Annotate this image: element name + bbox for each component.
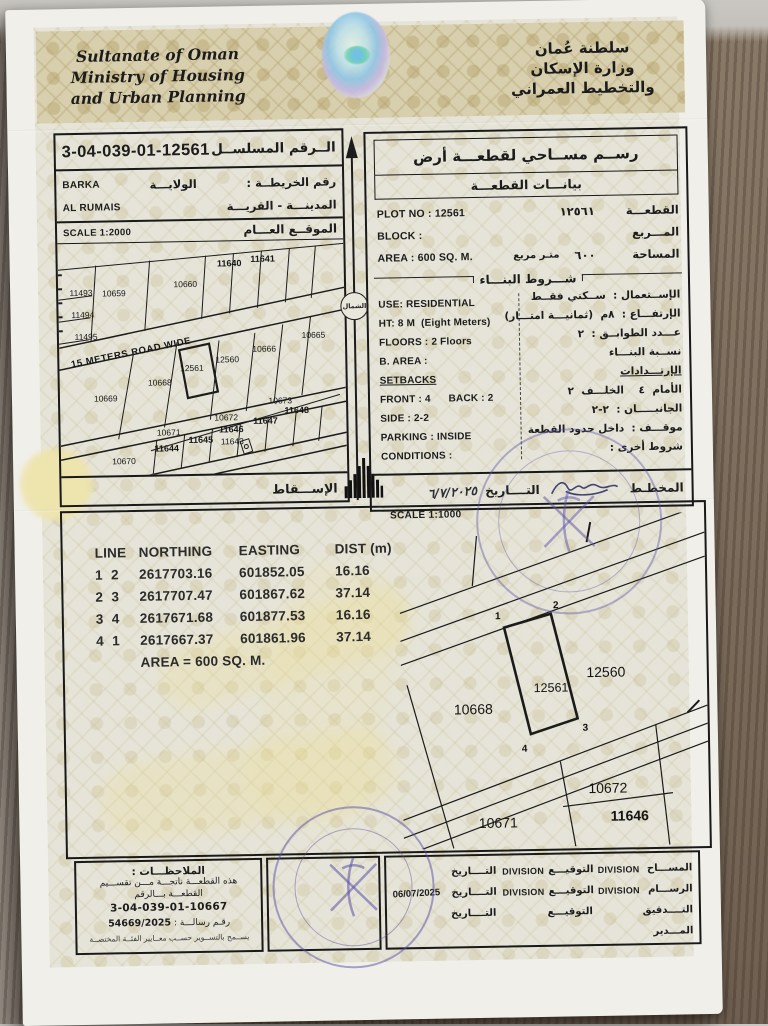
coordinates-table: LINENORTHINGEASTINGDIST (m) 122617703.16… (94, 537, 402, 670)
detail-section: SCALE 1:1000 LINENORTHINGEASTINGDIST (m)… (60, 500, 712, 859)
floors-en: FLOORS : 2 Floors (379, 336, 493, 357)
plot-no-ar-value: ١٢٥٦١ (560, 204, 595, 219)
overview-plot-10660: 10660 (173, 279, 197, 289)
plot-no-en: PLOT NO : 12561 (377, 207, 465, 221)
overview-plot-11495: 11495 (74, 331, 97, 341)
barea-en: B. AREA : (379, 355, 493, 376)
overview-plot-12561: 12561 (180, 363, 204, 373)
building-conditions: USE: RESIDENTIAL HT: 8 M (Eight Meters) … (368, 286, 691, 468)
overview-plot-11640: 11640 (217, 258, 242, 268)
projection-label: الإســـقاط (272, 480, 338, 496)
block-label-ar: المـــربع (632, 224, 679, 239)
corner-1: 1 (495, 611, 501, 622)
survey-date-label: التــــاريخ (485, 483, 540, 498)
overview-plot-11644: 11644 (154, 444, 179, 454)
wilaya-label: الولايـــة (149, 176, 196, 191)
area-ar-unit: متـر مربع (513, 250, 560, 262)
overview-map-title: الموقــع العـــام (243, 221, 337, 237)
parking-en: PARKING : INSIDE (381, 431, 495, 452)
computed-area: AREA = 600 SQ. M. (140, 650, 402, 670)
survey-title: رســم مســاحي لقطعـــة أرض (374, 134, 679, 175)
corner-2: 2 (553, 600, 559, 611)
setbacks-en: SETBACKS (380, 374, 494, 395)
corner-3: 3 (583, 723, 589, 734)
overview-plot-11494: 11494 (71, 309, 94, 319)
map-number-label: رقم الخريطــة : (246, 174, 336, 190)
overview-plot-10669: 10669 (94, 394, 118, 404)
stamp-box (266, 856, 382, 952)
town-label: المدينـــة - القريـــة (227, 197, 337, 213)
planner-signature (547, 477, 621, 502)
overview-plot-10665: 10665 (302, 329, 326, 339)
planner-label: المخطـط (630, 480, 684, 495)
footer-date: 06/07/2025 (392, 887, 450, 901)
document-paper: Sultanate of Oman Ministry of Housing an… (5, 0, 723, 1026)
survey-date-handwritten: ٦/٧/٢٠٢٥ (427, 482, 477, 500)
overview-plot-labels: 1149311494114951065910660116401164110665… (57, 239, 347, 476)
detail-map: 106681256112560106721164610671 1234 (398, 512, 710, 849)
overview-plot-11643: 11643 (221, 436, 244, 446)
overview-plot-12560: 12560 (215, 354, 239, 364)
table-row: 412617667.37601861.9637.14 (96, 625, 402, 652)
conditions-ar: شروط أخرى : (507, 440, 683, 462)
side-en: SIDE : 2-2 (380, 412, 494, 433)
notes-small-print: يســمح بالتســوير حســب معــايير الفئــة… (77, 932, 261, 944)
area-en: AREA : 600 SQ. M. (377, 251, 472, 265)
front-back-en: FRONT : 4 BACK : 2 (380, 393, 494, 414)
overview-plot-10668: 10668 (148, 378, 172, 388)
parent-plot-serial: 3-04-039-01-10667 (77, 899, 261, 916)
ministry-title-english: Sultanate of Oman Ministry of Housing an… (36, 43, 246, 110)
overview-map: 1149311494114951065910660116401164110665… (57, 238, 347, 476)
survey-data-box: رســم مســاحي لقطعـــة أرض بيانـــات الق… (363, 126, 694, 512)
overview-plot-10666: 10666 (252, 343, 276, 353)
area-ar-value: ٦٠٠ (574, 248, 595, 262)
letter-number-value: 54669/2025 (108, 917, 171, 929)
signature-box: المســـاحDIVISIONالتوقيـــعDIVISIONالتــ… (384, 850, 702, 950)
ministry-title-arabic: سلطنة عُمان وزارة الإسكان والتخطيط العمر… (510, 36, 685, 99)
wilaya-value: BARKA (62, 180, 100, 192)
overview-plot-10670: 10670 (112, 456, 136, 466)
notes-box: الملاحظـــات : هذه القطعـــة ناتجـــة مـ… (74, 858, 264, 955)
overview-plot-11645: 11645 (188, 435, 213, 445)
overview-plot-10673: 10673 (268, 395, 292, 405)
letter-number-line: رقـم رسالـــة : 54669/2025 (77, 916, 261, 930)
letter-number-label: رقـم رسالـــة : (174, 917, 230, 928)
overview-plot-11647: 11647 (253, 416, 278, 426)
town-value: AL RUMAIS (63, 202, 121, 214)
serial-label: الــرقم المسلســل (211, 139, 336, 157)
overview-plot-11646: 11646 (219, 424, 244, 434)
signature-row-director: المـــدير (393, 920, 693, 946)
area-label-ar: المساحة (632, 246, 680, 261)
use-en: USE: RESIDENTIAL (378, 298, 492, 319)
overview-plot-11648: 11648 (284, 405, 309, 415)
corner-4: 4 (522, 744, 528, 755)
height-en: HT: 8 M (Eight Meters) (379, 317, 493, 338)
overview-plot-11493: 11493 (69, 287, 92, 297)
location-map-box: الــرقم المسلســل 3-04-039-01-12561 رقم … (53, 128, 349, 507)
survey-subtitle: بيانـــات القطعـــة (374, 170, 678, 199)
plot-label-ar: القطعـــة (626, 202, 679, 217)
serial-number: 3-04-039-01-12561 (62, 140, 210, 162)
overview-plot-10671: 10671 (157, 427, 181, 437)
conditions-en: CONDITIONS : (381, 450, 495, 471)
overview-plot-11641: 11641 (250, 253, 275, 263)
overview-plot-10659: 10659 (102, 288, 126, 298)
block-en: BLOCK : (377, 230, 422, 243)
overview-plot-10672: 10672 (214, 412, 238, 422)
detail-corner-labels: 1234 (398, 512, 710, 849)
overview-scale: SCALE 1:2000 (63, 227, 131, 239)
